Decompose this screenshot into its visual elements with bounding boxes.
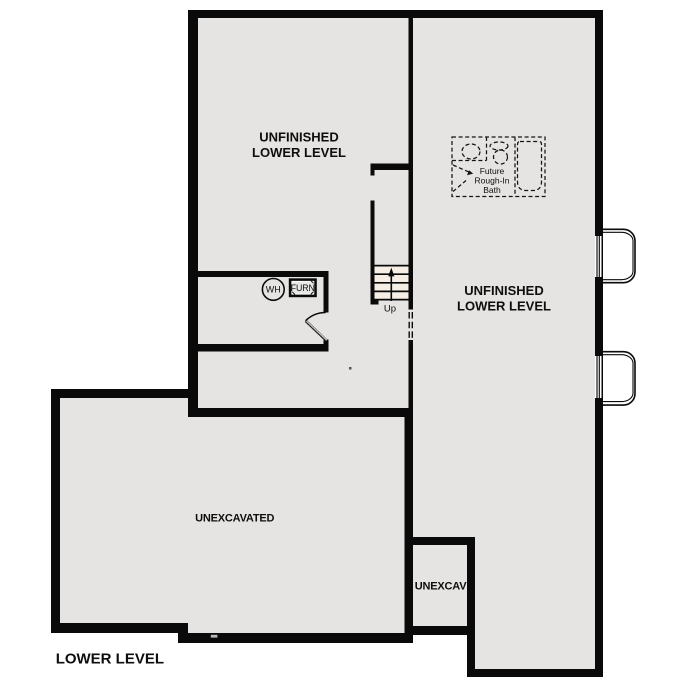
- svg-text:Rough-In: Rough-In: [475, 175, 510, 185]
- svg-text:UNEXCAV: UNEXCAV: [415, 580, 467, 592]
- svg-text:LOWER LEVEL: LOWER LEVEL: [56, 651, 164, 668]
- svg-text:UNFINISHED: UNFINISHED: [259, 130, 338, 145]
- svg-text:FURN: FURN: [291, 283, 315, 293]
- svg-text:Future: Future: [480, 166, 505, 176]
- svg-text:UNEXCAVATED: UNEXCAVATED: [195, 512, 274, 524]
- svg-text:WH: WH: [266, 285, 281, 295]
- svg-text:Bath: Bath: [483, 185, 501, 195]
- svg-text:LOWER LEVEL: LOWER LEVEL: [252, 145, 346, 160]
- svg-text:UNFINISHED: UNFINISHED: [464, 283, 543, 298]
- svg-text:LOWER LEVEL: LOWER LEVEL: [457, 299, 551, 314]
- svg-text:Up: Up: [384, 304, 396, 315]
